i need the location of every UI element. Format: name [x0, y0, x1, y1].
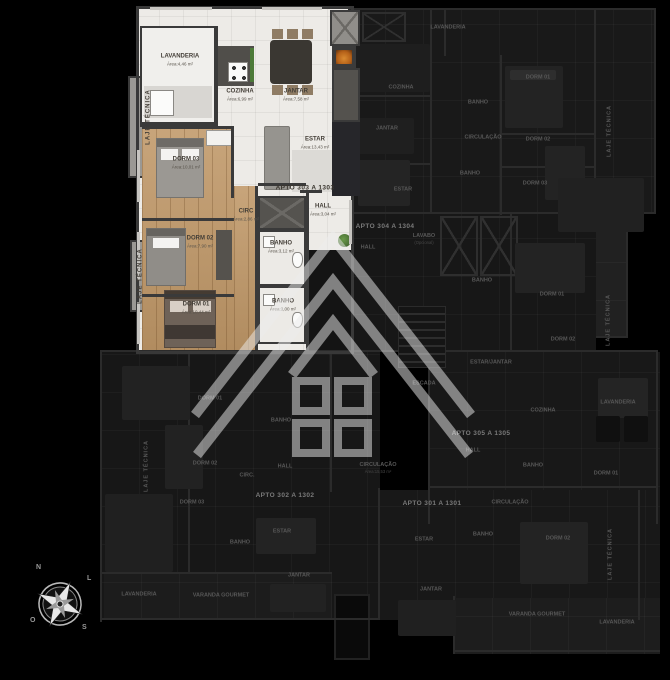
compass-north-label: N	[36, 564, 41, 571]
wall-segment	[500, 133, 596, 135]
dark-room-label: BANHO	[460, 171, 480, 178]
room-area-label: Área:13,43 m²	[301, 144, 330, 150]
dark-room-label: ESTAR	[415, 537, 433, 544]
furniture-blob	[520, 522, 588, 584]
dark-room-label: CIRCULAÇÃO	[465, 135, 502, 142]
dark-room-label: VARANDA GOURMET	[193, 593, 250, 600]
compass-south-label: S	[82, 624, 87, 631]
dark-room-label: ESTAR	[273, 529, 291, 536]
wall-segment	[430, 486, 658, 488]
dark-room-label: LAJE TÉCNICA	[607, 105, 614, 157]
floor-plan-canvas: LAVANDERIAÁrea:4,46 m²COZINHAÁrea:6,99 m…	[0, 0, 670, 680]
furniture-blob	[598, 378, 648, 418]
dark-room-label: JANTAR	[288, 573, 310, 580]
apto303-unit-label: APTO 303 A 1303	[276, 185, 335, 192]
logo-window-pane	[338, 423, 368, 453]
room-label: LAJE TÉCNICA	[137, 248, 145, 304]
room-label: HALLÁrea:3,04 m²	[310, 203, 336, 216]
dark-room-label: LAVANDERIA	[599, 620, 634, 627]
furniture-blob	[105, 494, 173, 572]
shaft-x-icon	[480, 216, 518, 276]
room-label: DORM 03Área:10,01 m²	[172, 156, 201, 169]
compass-west-label: O	[30, 617, 35, 624]
room-area-label: Área:6,99 m²	[226, 96, 253, 102]
dark-room-label: DORM 03	[180, 500, 204, 507]
room-label: LAVANDERIAÁrea:4,46 m²	[161, 53, 199, 66]
window	[137, 150, 140, 202]
compass-east-label: L	[87, 575, 91, 582]
furniture-blob	[270, 584, 326, 612]
furniture-blob	[624, 416, 648, 442]
dark-room-label: DORM 02	[546, 536, 570, 543]
furniture-blob	[122, 366, 190, 420]
dark-room-label: COZINHA	[388, 85, 413, 92]
furniture-blob	[515, 243, 585, 293]
window	[262, 7, 322, 10]
logo-chevron-inner	[292, 322, 374, 375]
dark-room-label: LAVANDERIA	[600, 400, 635, 407]
furniture-blob	[256, 518, 316, 554]
logo-window-pane	[296, 381, 326, 411]
wall-segment	[350, 95, 432, 97]
furniture-blob	[558, 178, 644, 232]
dark-room-label: BANHO	[473, 532, 493, 539]
wall	[215, 26, 218, 126]
room-area-label: Área:10,01 m²	[172, 164, 201, 170]
dark-room-label: VARANDA GOURMET	[509, 612, 566, 619]
wall	[142, 126, 234, 129]
furniture-blob	[358, 160, 410, 206]
logo-window-pane	[338, 381, 368, 411]
builder-logo-watermark	[190, 225, 480, 470]
dark-room-label: DORM 01	[594, 471, 618, 478]
room-label: ESTARÁrea:13,43 m²	[301, 136, 330, 149]
service-shaft	[332, 68, 360, 122]
dark-room-label: ESTAR	[394, 187, 412, 194]
dark-room-label: DORM 01	[540, 292, 564, 299]
room-area-label: Área:2,86 m²	[233, 216, 259, 222]
furniture-blob	[596, 416, 620, 442]
room-area-label: Área:7,58 m²	[283, 96, 309, 102]
room-label: COZINHAÁrea:6,99 m²	[226, 88, 253, 101]
wall	[231, 128, 234, 198]
dark-room-label: COZINHA	[530, 408, 555, 415]
dark-room-label: CIRCULAÇÃO	[492, 500, 529, 507]
service-shaft-dark	[332, 122, 360, 196]
dark-room-label: BANHO	[230, 540, 250, 547]
elevator-x-icon-dark	[362, 12, 406, 42]
logo-window-pane	[296, 423, 326, 453]
dark-unit-label: APTO 301 A 1301	[403, 500, 462, 508]
window	[137, 302, 140, 344]
elevator-core-black	[334, 594, 370, 660]
dark-unit-label: APTO 302 A 1302	[256, 492, 315, 500]
wall-segment	[455, 650, 660, 652]
fireplace-icon	[332, 46, 356, 68]
dark-room-label: DORM 02	[551, 337, 575, 344]
dark-room-label: BANHO	[523, 463, 543, 470]
room-area-label: Área:4,46 m²	[161, 61, 199, 67]
dark-room-label: LAVANDERIA	[430, 25, 465, 32]
room-label: CIRCÁrea:2,86 m²	[233, 208, 259, 221]
wall-segment	[102, 618, 380, 620]
room-label: LAJE TÉCNICA	[145, 89, 153, 145]
elevator-x-icon	[330, 10, 360, 46]
wall-segment	[638, 490, 640, 620]
wall-segment	[444, 10, 446, 56]
wall-segment	[654, 8, 656, 214]
wall-segment	[100, 352, 102, 622]
dark-room-label: DORM 03	[523, 181, 547, 188]
dark-room-label: LAJE TÉCNICA	[606, 294, 613, 346]
wall-segment	[348, 8, 656, 10]
wall-segment	[626, 214, 628, 338]
dark-room-label: JANTAR	[376, 126, 398, 133]
room-label: JANTARÁrea:7,58 m²	[283, 88, 309, 101]
wall	[142, 218, 234, 221]
room-area-label: Área:3,04 m²	[310, 211, 336, 217]
wall-segment	[430, 10, 432, 214]
dark-room-label: LAJE TÉCNICA	[144, 440, 151, 492]
dark-room-label: JANTAR	[420, 587, 442, 594]
wall-segment	[378, 488, 380, 620]
dark-room-label: LAJE TÉCNICA	[608, 528, 615, 580]
dark-room-label: DORM 02	[526, 137, 550, 144]
dark-room-label: CIRC.	[240, 473, 255, 480]
furniture-blob	[356, 118, 414, 154]
window	[150, 7, 212, 10]
furniture-blob	[398, 600, 456, 636]
wall-segment	[656, 352, 658, 524]
dark-room-label: LAVANDERIA	[121, 592, 156, 599]
dark-room-label: BANHO	[468, 100, 488, 107]
dark-room-label: DORM 01	[526, 75, 550, 82]
